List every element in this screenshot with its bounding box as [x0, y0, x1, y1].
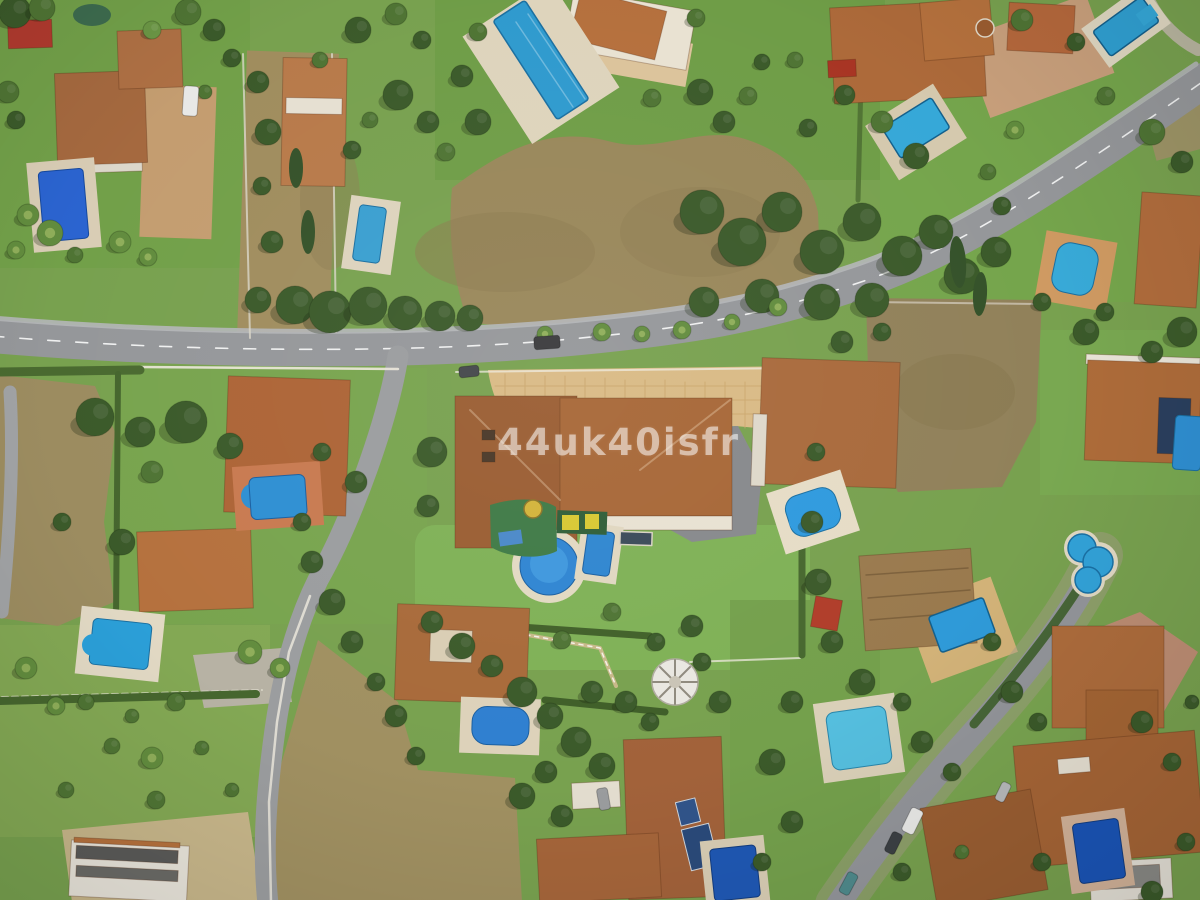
tree-highlight — [74, 249, 80, 255]
tree-highlight — [271, 234, 280, 243]
palm-crown — [116, 238, 125, 247]
tree-highlight — [321, 446, 328, 453]
scrub-mottle — [895, 354, 1015, 430]
tree — [799, 119, 817, 137]
tree — [255, 119, 281, 145]
tree — [589, 753, 615, 779]
tree-highlight — [860, 209, 875, 224]
tree-highlight — [351, 144, 358, 151]
tree-highlight — [139, 422, 151, 434]
scrub-mottle — [415, 212, 595, 292]
tree-highlight — [701, 656, 708, 663]
tree-highlight — [900, 242, 916, 258]
tree — [465, 109, 491, 135]
roof-window — [482, 452, 495, 462]
tree-highlight — [747, 90, 754, 97]
tree — [1029, 713, 1047, 731]
tree — [417, 111, 439, 133]
tree — [993, 197, 1011, 215]
tree — [1011, 9, 1033, 31]
tree — [1131, 711, 1153, 733]
tree — [1185, 695, 1199, 709]
tree — [293, 513, 311, 531]
hedge — [116, 374, 118, 620]
tree — [451, 65, 473, 87]
cypress-tree — [289, 148, 303, 188]
tree — [615, 691, 637, 713]
tree — [581, 681, 603, 703]
tree — [301, 551, 323, 573]
tree — [753, 853, 771, 871]
tree — [553, 631, 571, 649]
tree-highlight — [65, 784, 71, 790]
tree-highlight — [761, 56, 767, 62]
turret-roof — [976, 19, 994, 37]
tree-highlight — [651, 92, 658, 99]
tree — [919, 215, 953, 249]
tree-highlight — [1041, 296, 1048, 303]
tree — [67, 247, 83, 263]
tree — [643, 89, 661, 107]
tree — [104, 738, 120, 754]
tree-highlight — [7, 84, 16, 93]
tree — [253, 177, 271, 195]
tree — [873, 323, 891, 341]
tree — [217, 433, 243, 459]
tree — [1171, 151, 1193, 173]
tree — [245, 287, 271, 313]
tree — [821, 631, 843, 653]
tree-highlight — [1085, 323, 1095, 333]
tree — [362, 112, 378, 128]
tree-highlight — [649, 716, 656, 723]
tree-highlight — [700, 197, 718, 215]
tree-highlight — [355, 474, 364, 483]
tree-highlight — [719, 694, 728, 703]
tree — [980, 164, 996, 180]
tree-highlight — [397, 85, 409, 97]
tree-highlight — [1075, 36, 1082, 43]
tree-highlight — [545, 764, 554, 773]
tree — [78, 694, 94, 710]
tree — [693, 653, 711, 671]
villa-roof — [920, 789, 1048, 900]
tree-highlight — [111, 740, 117, 746]
tree-highlight — [1181, 154, 1190, 163]
tree-highlight — [1041, 856, 1048, 863]
tree-highlight — [328, 297, 345, 314]
tree — [345, 471, 367, 493]
tree — [125, 709, 139, 723]
tree-highlight — [229, 437, 239, 447]
tree — [385, 705, 407, 727]
tree — [1177, 833, 1195, 851]
tree-highlight — [257, 74, 266, 83]
tree-highlight — [331, 593, 341, 603]
villa-wall — [286, 98, 342, 115]
tree-highlight — [15, 114, 22, 121]
play-mat — [585, 514, 599, 529]
tree-highlight — [151, 24, 158, 31]
tree — [425, 301, 455, 331]
tree-highlight — [395, 6, 404, 15]
tree — [312, 52, 328, 68]
tree-highlight — [491, 658, 500, 667]
tree — [807, 443, 825, 461]
palm-crown — [639, 331, 645, 337]
tree-highlight — [695, 12, 702, 19]
tree-highlight — [319, 54, 325, 60]
tree-highlight — [184, 407, 201, 424]
tree — [349, 287, 387, 325]
tree — [341, 631, 363, 653]
tree — [383, 80, 413, 110]
pavilion-center — [669, 676, 681, 688]
tree — [903, 143, 929, 169]
palm-crown — [1011, 126, 1018, 133]
tree-highlight — [934, 220, 948, 234]
tree — [787, 52, 803, 68]
watermark-text: 44uk40isfr — [497, 421, 740, 464]
tree-highlight — [1141, 714, 1150, 723]
palm-crown — [245, 647, 255, 657]
tree-highlight — [151, 464, 160, 473]
tree — [781, 691, 803, 713]
tree — [1167, 317, 1197, 347]
tree-highlight — [427, 114, 436, 123]
tree — [1067, 33, 1085, 51]
tree-highlight — [921, 734, 930, 743]
tree-highlight — [201, 743, 207, 749]
tree-highlight — [366, 293, 381, 308]
tree-highlight — [794, 54, 800, 60]
tree — [203, 19, 225, 41]
tree-highlight — [811, 514, 820, 523]
tree-highlight — [820, 237, 838, 255]
tree-highlight — [93, 404, 108, 419]
tree — [449, 633, 475, 659]
tree — [53, 513, 71, 531]
tree-highlight — [881, 326, 888, 333]
tree — [413, 31, 431, 49]
tree-highlight — [1001, 200, 1008, 207]
play-mat — [562, 515, 579, 530]
tree — [417, 437, 447, 467]
tree-highlight — [703, 292, 715, 304]
tree — [261, 231, 283, 253]
swimming-pool — [709, 845, 760, 900]
tree — [1141, 341, 1163, 363]
tree-highlight — [477, 113, 487, 123]
swimming-pool — [249, 474, 308, 520]
tree — [225, 783, 239, 797]
tree-highlight — [870, 288, 884, 302]
parked-car — [182, 86, 199, 117]
tree-highlight — [831, 634, 840, 643]
tree — [680, 190, 724, 234]
swimming-pool — [1075, 567, 1101, 593]
palm-crown — [24, 211, 33, 220]
tree — [681, 615, 703, 637]
tree — [76, 398, 114, 436]
tree-highlight — [991, 636, 998, 643]
swimming-pool — [82, 634, 104, 656]
tree — [759, 749, 785, 775]
palm-crown — [729, 319, 735, 325]
tree — [551, 805, 573, 827]
tree-highlight — [760, 284, 774, 298]
tree-highlight — [699, 83, 709, 93]
tree-highlight — [791, 814, 800, 823]
villa-wall — [571, 781, 620, 809]
tree-highlight — [987, 166, 993, 172]
tree-highlight — [901, 696, 908, 703]
car-on-road — [534, 335, 561, 350]
tree-highlight — [477, 26, 484, 33]
tree — [1033, 293, 1051, 311]
tree-highlight — [817, 573, 827, 583]
tree-highlight — [841, 334, 850, 343]
tree — [943, 763, 961, 781]
tree — [367, 673, 385, 691]
tree — [1163, 753, 1181, 771]
tree — [165, 401, 207, 443]
tree — [855, 283, 889, 317]
tree — [421, 611, 443, 633]
villa-wall — [751, 414, 768, 486]
tree — [687, 79, 713, 105]
tree-highlight — [915, 147, 925, 157]
swimming-pool — [471, 706, 529, 746]
tree-highlight — [257, 291, 267, 301]
tree-highlight — [791, 694, 800, 703]
tree-highlight — [155, 794, 162, 801]
tree — [109, 529, 135, 555]
palm-crown — [148, 754, 157, 763]
tree — [143, 21, 161, 39]
tree-highlight — [261, 180, 268, 187]
tree — [147, 791, 165, 809]
swimming-pool — [1072, 818, 1126, 884]
tree — [641, 713, 659, 731]
tree — [689, 287, 719, 317]
tree-highlight — [85, 696, 91, 702]
tree-highlight — [761, 856, 768, 863]
tree — [983, 633, 1001, 651]
tree — [647, 633, 665, 651]
play-circle — [524, 500, 542, 518]
tree — [831, 331, 853, 353]
tree — [835, 85, 855, 105]
tree-highlight — [301, 516, 308, 523]
tree-highlight — [815, 446, 822, 453]
tree — [1097, 87, 1115, 105]
tree — [195, 741, 209, 755]
tree — [345, 17, 371, 43]
tree-highlight — [1011, 684, 1020, 693]
tree-highlight — [231, 785, 237, 791]
tree-highlight — [1151, 123, 1161, 133]
palm-crown — [774, 303, 781, 310]
tree — [167, 693, 185, 711]
tree-highlight — [521, 682, 533, 694]
tree — [800, 230, 844, 274]
tree — [911, 731, 933, 753]
tree-highlight — [591, 684, 600, 693]
tree-highlight — [625, 694, 634, 703]
palm-crown — [276, 664, 284, 672]
tree — [223, 49, 241, 67]
tree — [1139, 119, 1165, 145]
pool-cover — [620, 531, 652, 545]
tree — [804, 284, 840, 320]
tree — [469, 23, 487, 41]
palm-crown — [12, 246, 19, 253]
tree-highlight — [1191, 697, 1197, 703]
tree-highlight — [951, 766, 958, 773]
tree — [687, 9, 705, 27]
tree-highlight — [395, 708, 404, 717]
tree-highlight — [403, 301, 417, 315]
tree — [849, 669, 875, 695]
tree-highlight — [121, 533, 131, 543]
driveway — [139, 85, 216, 239]
tree-highlight — [1185, 836, 1192, 843]
red-roof — [828, 59, 857, 77]
tree-highlight — [267, 123, 277, 133]
tree — [457, 305, 483, 331]
tree-highlight — [561, 634, 568, 641]
tree — [709, 691, 731, 713]
tree-highlight — [311, 554, 320, 563]
cypress-tree — [301, 210, 315, 254]
tree — [141, 461, 163, 483]
tree-highlight — [1151, 884, 1160, 893]
tree-highlight — [1171, 756, 1178, 763]
tree — [417, 495, 439, 517]
tree-highlight — [421, 34, 428, 41]
tree-highlight — [427, 498, 436, 507]
tree-highlight — [375, 676, 382, 683]
tree-highlight — [575, 732, 587, 744]
tree-highlight — [691, 618, 700, 627]
tree-highlight — [469, 309, 479, 319]
tree-highlight — [807, 122, 814, 129]
tree-highlight — [844, 88, 852, 96]
tree — [739, 87, 757, 105]
tree-highlight — [369, 114, 375, 120]
tree-highlight — [1105, 90, 1112, 97]
tree — [781, 811, 803, 833]
tree-highlight — [293, 292, 308, 307]
tree — [481, 655, 503, 677]
tree — [762, 192, 802, 232]
tree — [1073, 319, 1099, 345]
tree-highlight — [431, 614, 440, 623]
villa-roof — [1134, 192, 1200, 308]
tree — [198, 85, 212, 99]
tree-highlight — [561, 808, 570, 817]
tree-highlight — [771, 753, 781, 763]
palm-crown — [22, 664, 31, 673]
tree — [247, 71, 269, 93]
tree — [7, 111, 25, 129]
tree-highlight — [1104, 306, 1111, 313]
tree-highlight — [61, 516, 68, 523]
tree-highlight — [415, 750, 422, 757]
tree-highlight — [13, 1, 26, 14]
tree-highlight — [549, 707, 559, 717]
tree-highlight — [861, 673, 871, 683]
tree-highlight — [131, 711, 137, 717]
tree — [313, 443, 331, 461]
villa-roof — [137, 528, 254, 612]
swimming-pool — [1172, 415, 1200, 471]
tree-highlight — [961, 847, 967, 853]
swimming-pool — [825, 705, 892, 771]
tree-highlight — [187, 3, 197, 13]
tree-highlight — [213, 22, 222, 31]
tree — [805, 569, 831, 595]
tree — [319, 589, 345, 615]
tree — [754, 54, 770, 70]
tree-highlight — [431, 442, 443, 454]
tree — [407, 747, 425, 765]
palm-crown — [678, 326, 685, 333]
tree-highlight — [521, 787, 531, 797]
tree — [1096, 303, 1114, 321]
tree-highlight — [1151, 344, 1160, 353]
tree — [1033, 853, 1051, 871]
tree — [537, 703, 563, 729]
tree-highlight — [611, 606, 618, 613]
villa-wall — [1057, 757, 1090, 775]
tree — [507, 677, 537, 707]
palm-crown — [598, 328, 605, 335]
villa-roof — [758, 358, 900, 489]
roof-window — [482, 430, 495, 440]
tree — [125, 417, 155, 447]
tree — [561, 727, 591, 757]
tree-highlight — [439, 306, 451, 318]
tree — [893, 863, 911, 881]
tree — [175, 0, 201, 25]
tree — [871, 111, 893, 133]
tree — [1001, 681, 1023, 703]
tree — [843, 203, 881, 241]
tree-highlight — [881, 114, 890, 123]
tree — [801, 511, 823, 533]
palm-crown — [144, 253, 151, 260]
tree — [388, 296, 422, 330]
tree-highlight — [655, 636, 662, 643]
tree — [509, 783, 535, 809]
tree-highlight — [995, 242, 1007, 254]
tree — [385, 3, 407, 25]
tree — [955, 845, 969, 859]
tree-highlight — [461, 68, 470, 77]
tree — [58, 782, 74, 798]
tree-highlight — [780, 198, 796, 214]
tree — [713, 111, 735, 133]
tree — [981, 237, 1011, 267]
screenshot-root: 44uk40isfr — [0, 0, 1200, 900]
palm-crown — [45, 228, 55, 238]
tree-highlight — [1037, 716, 1044, 723]
tree-highlight — [740, 225, 759, 244]
tree-highlight — [351, 634, 360, 643]
tree — [437, 143, 455, 161]
